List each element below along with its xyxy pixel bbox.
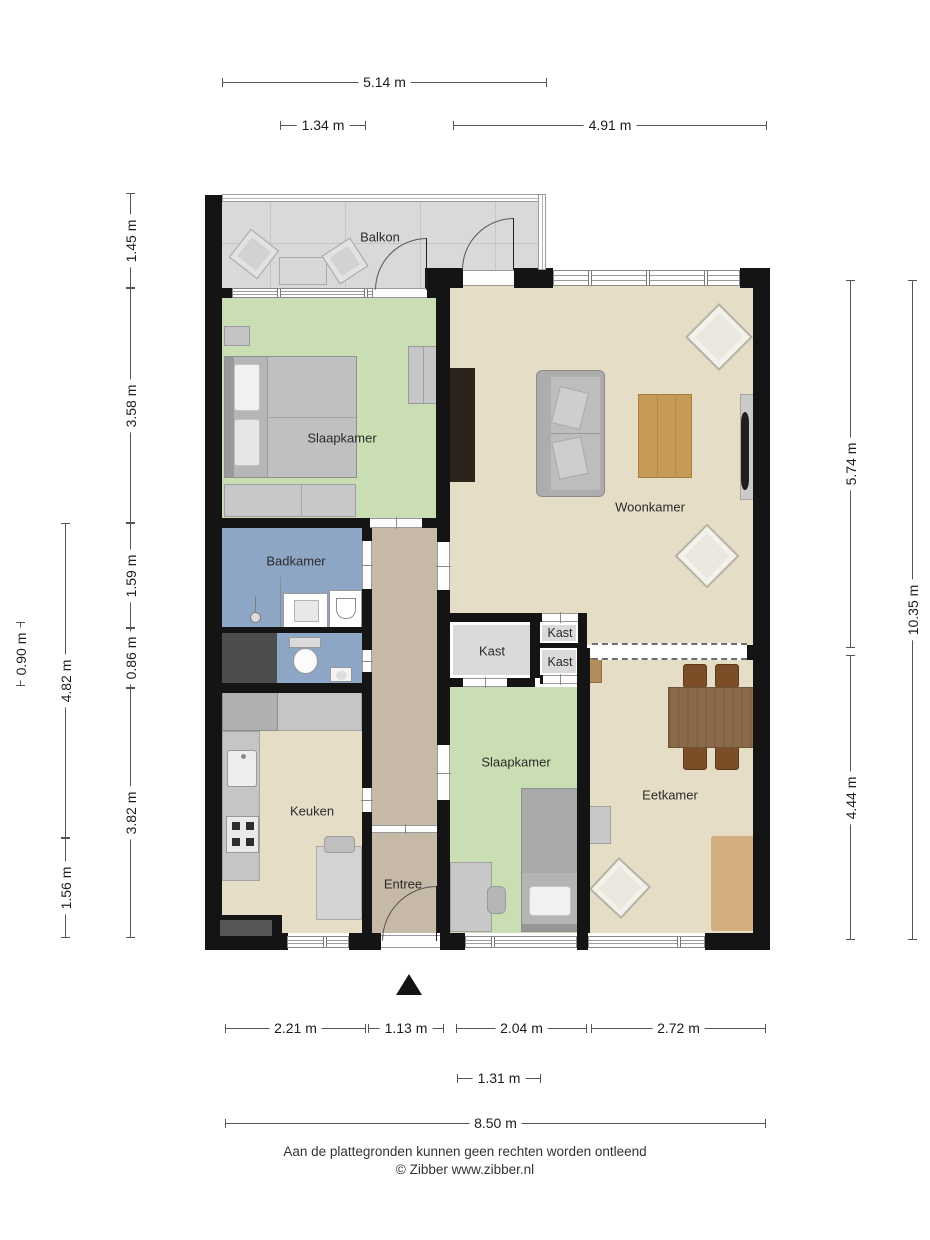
room-label-woonkamer: Woonkamer — [615, 500, 685, 515]
door-opening-hall-toilet — [362, 650, 372, 672]
window-bedroom2 — [465, 936, 577, 948]
room-label-eetkamer: Eetkamer — [642, 788, 698, 803]
dim-label: 10.35 m — [905, 580, 921, 641]
shower-drain — [336, 598, 356, 619]
dim-label: 4.91 m — [584, 117, 637, 133]
room-label-kast-onder: Kast — [547, 655, 572, 669]
door-opening-balcony-living — [463, 270, 514, 286]
window-divider — [323, 937, 327, 947]
wall — [436, 288, 450, 528]
wall — [222, 683, 372, 693]
bed — [224, 356, 357, 478]
disclaimer-line1: Aan de plattegronden kunnen geen rechten… — [0, 1143, 930, 1161]
footboard — [522, 924, 578, 931]
dresser — [224, 484, 356, 517]
dim-label: 1.31 m — [473, 1070, 526, 1086]
window-divider — [491, 937, 495, 947]
door-opening-closet-top — [542, 613, 578, 622]
door-tick — [485, 677, 486, 688]
door-opening-hall-kitchen — [362, 788, 372, 812]
door-tick — [560, 612, 561, 623]
window-divider — [704, 271, 708, 285]
dim-label: 4.44 m — [843, 771, 859, 824]
window-bedroom1 — [232, 288, 373, 298]
window-divider — [677, 937, 681, 947]
dim-label: 1.45 m — [123, 214, 139, 267]
dim-label: 8.50 m — [469, 1115, 522, 1131]
dim-label: 2.72 m — [652, 1020, 705, 1036]
room-label-slaapkamer1: Slaapkamer — [307, 431, 376, 446]
door-tick — [396, 517, 397, 529]
wall — [422, 518, 450, 528]
wall — [205, 195, 222, 950]
dining-chair — [683, 664, 707, 688]
bed — [521, 788, 579, 932]
wardrobe — [408, 346, 437, 404]
window-kitchen — [287, 936, 349, 948]
window-diningroom — [588, 936, 705, 948]
wall — [540, 643, 578, 648]
shower-tray — [329, 590, 362, 628]
door-tick — [361, 565, 373, 566]
room-label-kast-boven: Kast — [547, 626, 572, 640]
dim-bottom-3: 2.04 m — [456, 1028, 587, 1029]
wall — [349, 933, 381, 950]
door-opening-bedroom1-hall — [370, 518, 422, 528]
dim-left-1: 1.45 m — [130, 193, 131, 288]
dim-label: 2.04 m — [495, 1020, 548, 1036]
window-divider — [588, 271, 592, 285]
dim-bottom-1: 2.21 m — [225, 1028, 366, 1029]
sink — [227, 750, 257, 787]
dim-label: 0.90 m — [13, 628, 29, 681]
wall — [747, 645, 757, 660]
door-opening-closet-large — [463, 678, 507, 687]
floorplan: Balkon Slaapkamer Woonkamer Badkamer Kas… — [0, 0, 930, 1240]
dim-right-2: 4.44 m — [850, 655, 851, 940]
dim-label: 1.34 m — [297, 117, 350, 133]
dim-label: 3.58 m — [123, 379, 139, 432]
dim-left-5: 3.82 m — [130, 688, 131, 938]
pillow — [529, 886, 571, 916]
wardrobe-line — [423, 347, 424, 403]
pillow — [234, 419, 260, 466]
balcony-table — [279, 257, 327, 285]
door-tick — [436, 773, 451, 774]
wall — [705, 933, 770, 950]
room-label-entree: Entree — [384, 877, 422, 892]
dim-label: 5.74 m — [843, 438, 859, 491]
door-opening-hall-entree — [372, 825, 437, 833]
dim-bottom-total: 8.50 m — [225, 1123, 766, 1124]
dim-right-total: 10.35 m — [912, 280, 913, 940]
wall — [222, 288, 232, 298]
dim-left-outer-3: 0.90 m — [20, 622, 21, 686]
duvet — [522, 789, 578, 873]
cabinet-dark — [448, 368, 475, 482]
wall — [222, 518, 370, 528]
dim-label: 5.14 m — [358, 74, 411, 90]
balcony-railing — [222, 194, 546, 202]
balcony-railing — [538, 194, 546, 270]
duvet-line — [267, 417, 356, 418]
wall — [440, 933, 465, 950]
wall — [425, 268, 463, 288]
burner — [246, 838, 254, 846]
door-tick — [361, 800, 373, 801]
room-label-kast-groot: Kast — [479, 644, 505, 659]
sofa-divider — [551, 433, 600, 434]
window-livingroom — [553, 270, 740, 286]
hallway-floor — [370, 528, 437, 933]
dim-top-right: 4.91 m — [453, 125, 767, 126]
wood-grain — [675, 395, 676, 477]
basin — [294, 600, 319, 622]
dim-label: 4.82 m — [58, 654, 74, 707]
livingroom-floor — [587, 613, 753, 645]
dim-label: 0.86 m — [123, 632, 139, 685]
dim-bottom-5: 1.31 m — [457, 1078, 541, 1079]
north-arrow-icon — [396, 974, 422, 995]
room-label-balkon: Balkon — [360, 230, 400, 245]
burner — [232, 838, 240, 846]
room-label-badkamer: Badkamer — [266, 554, 325, 569]
dim-right-1: 5.74 m — [850, 280, 851, 648]
dim-left-2: 3.58 m — [130, 288, 131, 523]
dim-label: 1.56 m — [58, 862, 74, 915]
door-leaf — [426, 238, 427, 290]
window-divider — [646, 271, 650, 285]
copyright-line: © Zibber www.zibber.nl — [0, 1161, 930, 1179]
fridge — [222, 692, 278, 731]
toilet-bowl — [293, 648, 318, 674]
wall — [753, 268, 770, 950]
door-opening-closet-bottom — [543, 675, 577, 684]
rug — [711, 836, 755, 931]
dining-chair — [715, 664, 739, 688]
faucet — [241, 754, 246, 759]
room-label-slaapkamer2: Slaapkamer — [481, 755, 550, 770]
basin — [336, 671, 347, 680]
kitchen-counter-dark — [220, 920, 272, 936]
dim-label: 1.59 m — [123, 549, 139, 602]
door-opening-hall-bathroom — [362, 541, 372, 589]
dim-label: 2.21 m — [269, 1020, 322, 1036]
dim-top-left: 1.34 m — [280, 125, 366, 126]
stove — [226, 816, 259, 853]
window-divider — [364, 289, 368, 297]
kitchen-table — [316, 846, 362, 920]
kitchen-chair — [324, 836, 355, 853]
door-tick — [436, 566, 451, 567]
dim-left-4: 0.86 m — [130, 628, 131, 688]
dim-bottom-4: 2.72 m — [591, 1028, 766, 1029]
hand-basin — [330, 667, 352, 682]
coffee-table — [638, 394, 692, 478]
tv — [741, 412, 749, 490]
dining-chair — [715, 746, 739, 770]
pillow — [234, 364, 260, 411]
wall — [577, 648, 590, 933]
window-divider — [277, 289, 281, 297]
shaft — [222, 633, 277, 683]
door-tick — [361, 661, 373, 662]
disclaimer: Aan de plattegronden kunnen geen rechten… — [0, 1143, 930, 1179]
dim-top-total: 5.14 m — [222, 82, 547, 83]
glass-partition — [280, 577, 281, 628]
wall — [577, 933, 588, 950]
burner — [232, 822, 240, 830]
dining-chair — [683, 746, 707, 770]
door-opening-hall-bedroom2 — [437, 745, 450, 800]
door-leaf — [436, 886, 437, 941]
door-tick — [560, 674, 561, 685]
dim-label: 1.13 m — [380, 1020, 433, 1036]
shower-head — [250, 612, 261, 623]
door-opening-hall-living — [437, 542, 450, 590]
wall — [530, 622, 540, 678]
dim-left-outer-2: 1.56 m — [65, 838, 66, 938]
room-label-keuken: Keuken — [290, 804, 334, 819]
desk-chair — [487, 886, 506, 914]
dresser-line — [301, 485, 302, 516]
nightstand — [224, 326, 250, 346]
desk — [450, 862, 492, 932]
vanity — [283, 593, 328, 628]
dim-bottom-2: 1.13 m — [368, 1028, 444, 1029]
dim-left-outer-1: 4.82 m — [65, 523, 66, 838]
wall — [222, 627, 362, 633]
dining-table — [668, 687, 757, 748]
side-table — [588, 658, 602, 683]
door-leaf — [513, 218, 514, 270]
dim-label: 3.82 m — [123, 787, 139, 840]
sofa — [536, 370, 605, 497]
door-tick — [405, 824, 406, 834]
open-passage-living-dining — [592, 643, 747, 660]
toilet-tank — [289, 637, 321, 648]
headboard — [225, 357, 234, 477]
dim-left-3: 1.59 m — [130, 523, 131, 628]
wall — [514, 268, 553, 288]
wood-grain — [657, 395, 658, 477]
burner — [246, 822, 254, 830]
